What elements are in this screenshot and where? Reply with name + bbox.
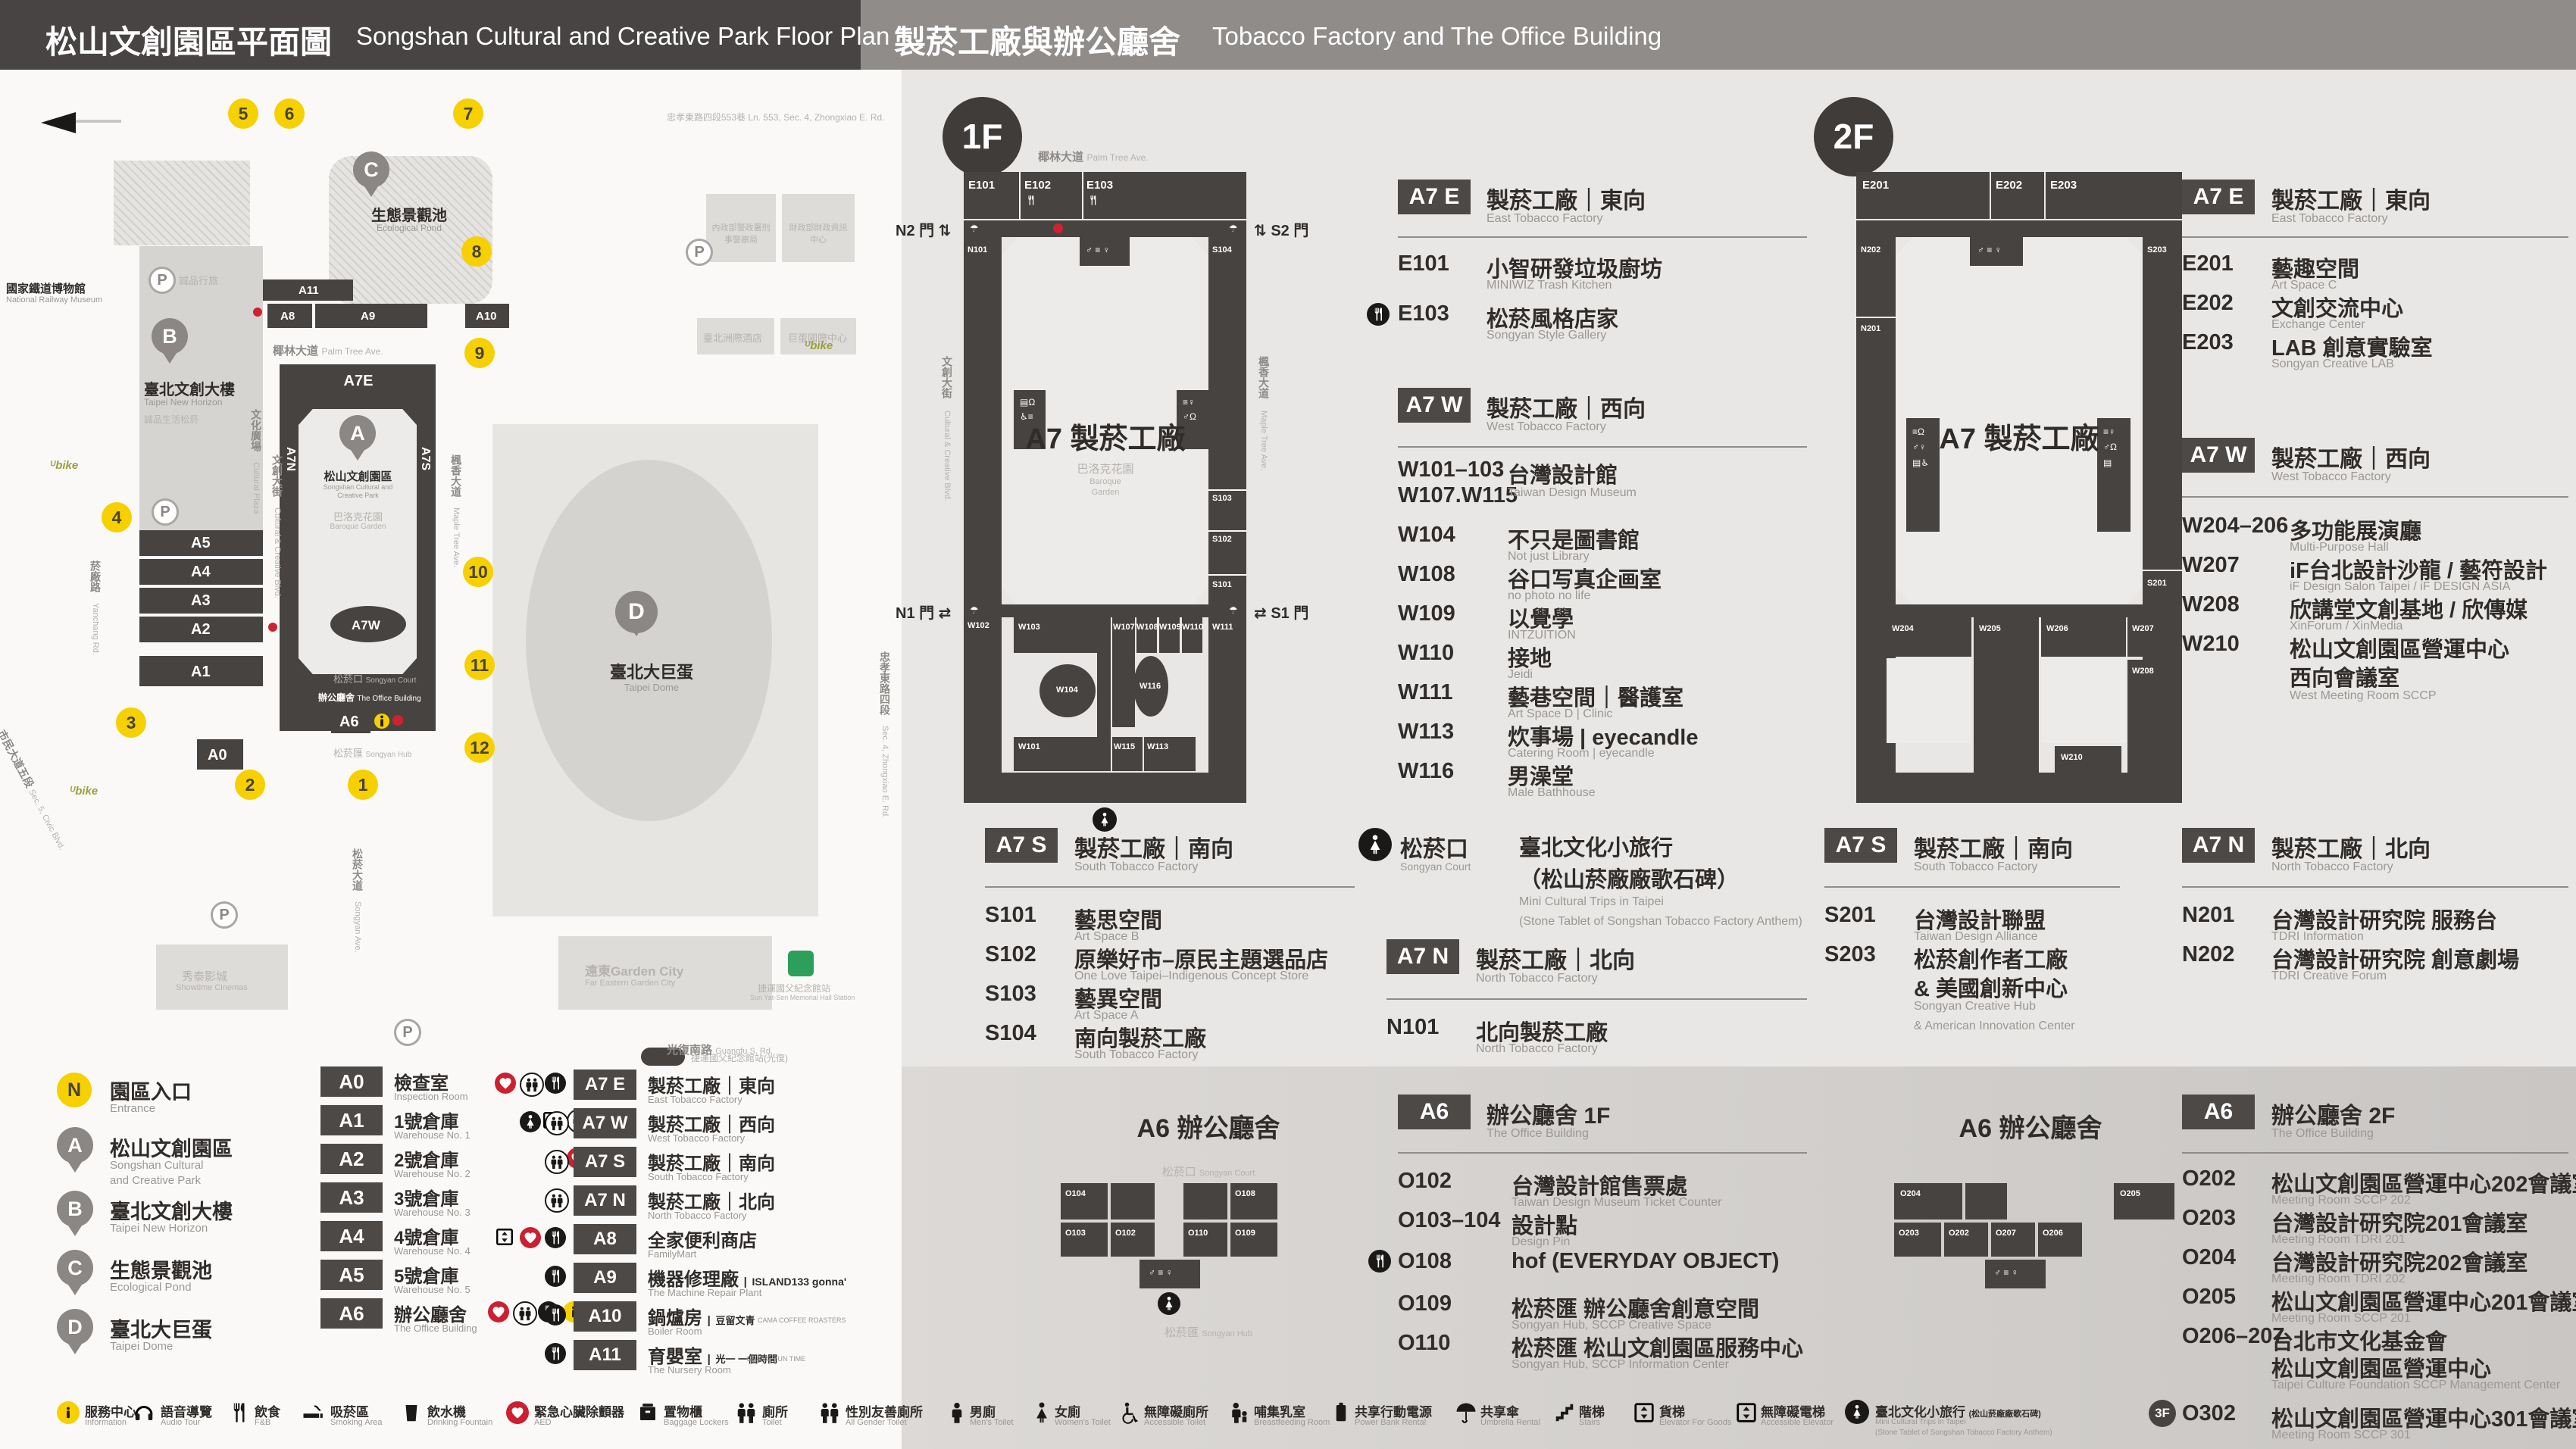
a6-2f-title: 辦公廳舍 2F bbox=[2271, 1097, 2395, 1130]
goods-elevator-strip-icon bbox=[1633, 1401, 1655, 1424]
floor-1f-badge: 1F bbox=[943, 97, 1022, 176]
f1-room-w113: W113 bbox=[1147, 742, 1168, 751]
a6-room-o108-label: O108 bbox=[1235, 1189, 1255, 1198]
taipei-dome-oval bbox=[526, 460, 772, 821]
mrt-logo-icon bbox=[788, 951, 814, 976]
row-en: TDRI Creative Forum bbox=[2271, 970, 2387, 983]
building-a9-label: A9 bbox=[361, 310, 375, 323]
legend-pin-b: B bbox=[57, 1191, 93, 1227]
strip-label-en: Power Bank Rental bbox=[1355, 1418, 1426, 1427]
f2-a7n-title: 製菸工廠｜北向 bbox=[2271, 830, 2431, 863]
f1-ediv3 bbox=[1208, 574, 1246, 576]
f2-a7e-title-en: East Tobacco Factory bbox=[2271, 212, 2388, 226]
row-en: Songyan Creative Hub bbox=[1914, 1000, 2036, 1013]
row-en: North Tobacco Factory bbox=[1476, 1042, 1598, 1056]
f2-w204-block bbox=[1887, 617, 1971, 657]
f1-room-e102: E102 bbox=[1024, 179, 1051, 192]
parking-icon-south2: P bbox=[394, 1019, 421, 1046]
trip-icon-a6-map bbox=[1158, 1292, 1180, 1315]
f1-a7e-rule bbox=[1398, 236, 1807, 238]
row-code: S203 bbox=[1824, 942, 1876, 967]
entrance-3: 3 bbox=[116, 707, 146, 738]
a7e-wing-label: A7E bbox=[336, 373, 381, 390]
f2-room-w207: W207 bbox=[2132, 624, 2154, 633]
trip-en1: Mini Cultural Trips in Taipei bbox=[1519, 895, 1664, 909]
legend-a2-badge: A2 bbox=[320, 1144, 383, 1174]
f2-center-label: A7 製菸工廠 bbox=[1902, 415, 2137, 457]
fnb-icon-o108 bbox=[1368, 1250, 1391, 1273]
row-en: Songyan Hub, SCCP Information Center bbox=[1512, 1358, 1729, 1372]
row-code: N201 bbox=[2182, 903, 2234, 928]
row-code: S201 bbox=[1824, 903, 1876, 928]
legend-pin-a: A bbox=[57, 1127, 93, 1163]
row-zh2: & 美國創新中心 bbox=[1914, 971, 2068, 1003]
baggage-lockers-icon bbox=[636, 1401, 659, 1424]
f1-room-n101: N101 bbox=[968, 245, 987, 255]
a6-1f-badge: A6 bbox=[1398, 1095, 1471, 1129]
legend-a5-en: Warehouse No. 5 bbox=[394, 1284, 470, 1295]
f1-room-w116: W116 bbox=[1140, 682, 1161, 691]
f1-a7s-title-en: South Tobacco Factory bbox=[1074, 860, 1198, 874]
youbike-icon-2: ᵁbike bbox=[70, 785, 98, 798]
f1-a7s-badge: A7 S bbox=[985, 828, 1058, 863]
strip-label-en: Baggage Lockers bbox=[664, 1418, 729, 1427]
legend-a7e-en: East Tobacco Factory bbox=[648, 1094, 742, 1105]
a6-room-o109-label: O109 bbox=[1235, 1229, 1255, 1238]
fnb-icon bbox=[227, 1401, 250, 1424]
legend-a11-badge: A11 bbox=[574, 1340, 636, 1370]
row-code: S102 bbox=[985, 942, 1036, 967]
building-a0-label: A0 bbox=[208, 747, 227, 764]
row-en: Male Bathhouse bbox=[1508, 786, 1596, 800]
row-zh: 松山文創園區營運中心 bbox=[2290, 632, 2509, 664]
f1-garden-en2: Garden bbox=[1008, 488, 1203, 497]
f1-center-label: A7 製菸工廠 bbox=[1008, 415, 1203, 457]
building-a5-label: A5 bbox=[191, 535, 211, 552]
legend-a7w-badge: A7 W bbox=[574, 1108, 636, 1138]
legend-a10-p2: CAMA COFFEE ROASTERS bbox=[758, 1316, 846, 1324]
trip-en2: (Stone Tablet of Songshan Tobacco Factor… bbox=[1519, 915, 1802, 929]
strip-label-en: Accessible Elevator bbox=[1761, 1418, 1834, 1427]
aed-icon-a7e bbox=[495, 1073, 516, 1094]
strip-label-en: Smoking Area bbox=[330, 1418, 382, 1427]
f1-room-w108: W108 bbox=[1136, 623, 1158, 632]
row-zh: 台灣設計館 bbox=[1508, 457, 1618, 489]
dome-label-zh: 臺北大巨蛋 bbox=[561, 659, 742, 683]
legend-a5-badge: A5 bbox=[320, 1260, 383, 1290]
railway-museum-label-zh: 國家鐵道博物館 bbox=[6, 280, 86, 296]
row-code: W204–206 bbox=[2182, 514, 2288, 539]
accessible-elevator-icon bbox=[1735, 1401, 1758, 1424]
fnb-icon-e103-row bbox=[1367, 303, 1390, 326]
f2-a7e-title: 製菸工廠｜東向 bbox=[2271, 182, 2431, 215]
a7n-wing-label: A7N bbox=[283, 447, 297, 500]
a6-1f-title: 辦公廳舍 1F bbox=[1487, 1097, 1610, 1130]
parking-icon-ne: P bbox=[686, 239, 713, 266]
right-title-zh: 製菸工廠與辦公廳舍 bbox=[894, 17, 1180, 63]
legend-d-zh: 臺北大巨蛋 bbox=[110, 1313, 212, 1343]
legend-a8-badge: A8 bbox=[574, 1224, 636, 1254]
row-en: Meeting Room SCCP 301 bbox=[2271, 1429, 2411, 1442]
fnb-icon-a11 bbox=[545, 1343, 566, 1364]
umbrella-rental-icon bbox=[1455, 1401, 1477, 1424]
building-a11-label: A11 bbox=[299, 284, 319, 297]
toilet-icon-a7s bbox=[545, 1150, 569, 1174]
entrance-8: 8 bbox=[461, 236, 492, 267]
f1-w107-block bbox=[1112, 617, 1135, 727]
f1-garden-zh: 巴洛克花園 bbox=[1008, 461, 1203, 476]
row-en: Songyan Style Gallery bbox=[1487, 329, 1606, 342]
row-code: N101 bbox=[1386, 1015, 1439, 1040]
strip-label-en: F&B bbox=[255, 1418, 270, 1427]
pin-a: A bbox=[339, 415, 376, 451]
row-code: W104 bbox=[1398, 523, 1455, 548]
trip-icon-a7w bbox=[520, 1111, 541, 1132]
floor-plan-poster: 松山文創園區平面圖 Songshan Cultural and Creative… bbox=[0, 0, 2576, 1449]
aed-icon-a8 bbox=[520, 1227, 541, 1248]
f2-room-e201: E201 bbox=[1862, 179, 1889, 192]
f2-a7n-rule bbox=[2182, 886, 2568, 888]
strip-label-en: Information bbox=[85, 1418, 127, 1427]
row-en: MINIWIZ Trash Kitchen bbox=[1487, 279, 1612, 292]
building-a8-label: A8 bbox=[280, 310, 295, 323]
f2-room-w204: W204 bbox=[1892, 624, 1914, 633]
f1-room-s102: S102 bbox=[1212, 535, 1232, 544]
cc-blvd-label: 文創大街 Cultural & Creative Blvd. bbox=[270, 454, 285, 598]
legend-a0-en: Inspection Room bbox=[394, 1091, 468, 1102]
a6-2f-title-en: The Office Building bbox=[2271, 1127, 2374, 1141]
a6-2f-rule bbox=[2182, 1152, 2568, 1154]
f2-room-n202: N202 bbox=[1861, 245, 1880, 255]
hotel-label: 臺北洲際酒店 bbox=[703, 330, 762, 345]
legend-entrance-en: Entrance bbox=[110, 1102, 155, 1115]
cc-blvd-1f: 文創大街 Cultural & Creative Blvd. bbox=[938, 356, 956, 501]
aed-dot-a8 bbox=[253, 308, 262, 317]
f2-w206-block bbox=[2041, 617, 2126, 657]
building-a2-label: A2 bbox=[191, 621, 211, 639]
goods-elevator-icon-a8 bbox=[495, 1227, 514, 1247]
legend-a-en2: and Creative Park bbox=[110, 1174, 201, 1187]
stairs-icon bbox=[1553, 1401, 1576, 1424]
f2-a7s-badge: A7 S bbox=[1824, 828, 1897, 863]
umbrella-icon-s2: ☂ bbox=[1229, 223, 1238, 233]
fnb-icon-e102 bbox=[1024, 194, 1036, 206]
row-code: W109 bbox=[1398, 601, 1455, 626]
row-code: O205 bbox=[2182, 1285, 2236, 1310]
row-code: O103–104 bbox=[1398, 1208, 1500, 1233]
pond-label-zh: 生態景觀池 bbox=[318, 203, 500, 225]
a6-room-o102 bbox=[1111, 1223, 1155, 1257]
a6-room-o205-label: O205 bbox=[2120, 1189, 2140, 1198]
f1-a7e-badge: A7 E bbox=[1398, 180, 1471, 214]
mini-cultural-trips-icon bbox=[1845, 1400, 1869, 1424]
pin-d: D bbox=[615, 591, 658, 633]
f1-a7e-title-en: East Tobacco Factory bbox=[1487, 212, 1603, 226]
f2-a7w-title: 製菸工廠｜西向 bbox=[2271, 440, 2431, 473]
fnb-icon-a7e bbox=[545, 1073, 566, 1094]
f2-a7s-rule bbox=[1824, 886, 2120, 888]
strip-label-en: Umbrella Rental bbox=[1480, 1418, 1540, 1427]
row-code: W210 bbox=[2182, 632, 2240, 657]
railway-museum-label-en: National Railway Museum bbox=[6, 295, 102, 304]
f2-north-corridor bbox=[1856, 220, 2182, 237]
trip-title-en: Songyan Court bbox=[1400, 860, 1471, 873]
f1-a7n-badge: A7 N bbox=[1386, 939, 1459, 974]
strip-label-en: Breastfeeding Room bbox=[1254, 1418, 1330, 1427]
a6-2f-block1 bbox=[1965, 1183, 2007, 1219]
row-code: W116 bbox=[1398, 759, 1454, 784]
legend-pin-c: C bbox=[57, 1250, 93, 1286]
row-code: S103 bbox=[985, 982, 1036, 1007]
f1-room-e103: E103 bbox=[1086, 179, 1113, 192]
row-code2: W107.W115 bbox=[1398, 483, 1518, 508]
row-code: E103 bbox=[1398, 301, 1449, 326]
toilet-icon-a7w bbox=[545, 1111, 569, 1135]
restroom-icons-a6: ♂ ≡ ♀ bbox=[1149, 1268, 1173, 1277]
f1-a7w-title-en: West Tobacco Factory bbox=[1487, 420, 1606, 434]
f1-gate-s2: ⇅ S2 門 bbox=[1254, 218, 1308, 240]
f2-room-n201: N201 bbox=[1861, 324, 1880, 333]
row-code: S101 bbox=[985, 903, 1036, 928]
f2-room-w210: W210 bbox=[2061, 753, 2083, 762]
legend-b-en: Taipei New Horizon bbox=[110, 1222, 208, 1235]
garden-city-label-en: Far Eastern Garden City bbox=[585, 979, 675, 988]
legend-a8-en: FamilyMart bbox=[648, 1248, 696, 1260]
plaza-hatch-area bbox=[114, 161, 250, 245]
f1-room-s104: S104 bbox=[1212, 245, 1232, 255]
f2-w204-room bbox=[1887, 658, 1971, 743]
row-code: O109 bbox=[1398, 1291, 1452, 1316]
legend-a4-en: Warehouse No. 4 bbox=[394, 1245, 470, 1257]
garden-city-label: 遠東Garden City bbox=[585, 960, 683, 979]
f1-room-w109: W109 bbox=[1159, 623, 1181, 632]
youbike-icon-1: ᵁbike bbox=[50, 459, 78, 472]
f1-west-wing bbox=[964, 237, 1002, 803]
dome-label-en: Taipei Dome bbox=[561, 682, 742, 693]
f1-a7w-rule bbox=[1398, 446, 1807, 448]
guangfu-rd-label: 光復南路 Guangfu S. Rd. bbox=[667, 1041, 773, 1057]
entrance-11: 11 bbox=[464, 650, 495, 680]
f2-a7n-badge: A7 N bbox=[2182, 828, 2255, 863]
a6-room-o102-label: O102 bbox=[1115, 1229, 1136, 1238]
f1-a7s-rule bbox=[985, 886, 1355, 888]
f1-room-s103: S103 bbox=[1212, 494, 1232, 503]
restroom-icons-a6-2f: ♂ ≡ ♀ bbox=[1994, 1268, 2018, 1277]
youbike-icon-3: ᵁbike bbox=[805, 339, 833, 352]
legend-a11-en: The Nursery Room bbox=[648, 1364, 731, 1376]
strip-label-en: Accessible Toilet bbox=[1144, 1418, 1205, 1427]
legend-a7s-badge: A7 S bbox=[574, 1147, 636, 1177]
f1-room-s101: S101 bbox=[1212, 580, 1232, 589]
legend-b-zh: 臺北文創大樓 bbox=[110, 1195, 233, 1225]
baroque-garden-en: Baroque Garden bbox=[303, 523, 413, 531]
songyan-hub-label: 松菸匯 Songyan Hub bbox=[333, 745, 411, 760]
civic-blvd-label: 市民大道五段 Sec. 5, Civic Blvd. bbox=[0, 727, 70, 852]
f2-a7e-badge: A7 E bbox=[2182, 180, 2255, 214]
trip-icon-f1-map bbox=[1093, 807, 1117, 832]
a6-1f-rule bbox=[1398, 1152, 1807, 1154]
f2-south-band bbox=[1856, 773, 2182, 803]
row-en: Taipei Culture Foundation SCCP Managemen… bbox=[2271, 1379, 2560, 1392]
entrance-4: 4 bbox=[102, 502, 132, 532]
row-en2: & American Innovation Center bbox=[1914, 1020, 2075, 1033]
row-en: Design Pin bbox=[1512, 1235, 1570, 1249]
legend-a7s-en: South Tobacco Factory bbox=[648, 1171, 749, 1182]
f2-ediv bbox=[2143, 570, 2182, 571]
f2-a7n-title-en: North Tobacco Factory bbox=[2271, 860, 2393, 874]
a6-room-o202-label: O202 bbox=[1949, 1229, 1969, 1238]
trip-line2: （松山菸廠廠歌石碑） bbox=[1519, 862, 1739, 894]
legend-a2-en: Warehouse No. 2 bbox=[394, 1168, 470, 1179]
row-zh: hof (EVERYDAY OBJECT) bbox=[1512, 1249, 1779, 1274]
building-a4-label: A4 bbox=[191, 564, 211, 581]
row-code: W108 bbox=[1398, 562, 1455, 587]
a6-room-o110-label: O110 bbox=[1188, 1229, 1208, 1238]
f2-south-corridor bbox=[1856, 604, 2182, 617]
a6-block-1 bbox=[1111, 1183, 1155, 1219]
strip-label-en: Elevator For Goods bbox=[1659, 1418, 1731, 1427]
entrance-7: 7 bbox=[453, 98, 483, 129]
a6-room-o203-label: O203 bbox=[1899, 1229, 1919, 1238]
sccp-label-zh: 松山文創園區 bbox=[303, 468, 413, 484]
row-en: Songyan Creative LAB bbox=[2271, 358, 2394, 371]
f1-south-band bbox=[964, 773, 1246, 803]
floor-2f-badge: 2F bbox=[1814, 97, 1893, 176]
a6-room-o203 bbox=[1894, 1223, 1941, 1257]
f1-room-w107: W107 bbox=[1113, 623, 1135, 632]
f1-garden-en1: Baroque bbox=[1008, 477, 1203, 486]
legend-a7n-badge: A7 N bbox=[574, 1185, 636, 1216]
f2-w207-block bbox=[2127, 617, 2182, 657]
parking-icon-south: P bbox=[211, 901, 238, 929]
legend-entrance-zh: 園區入口 bbox=[110, 1076, 192, 1105]
legend-a-en1: Songshan Cultural bbox=[110, 1159, 203, 1172]
f2-div1 bbox=[1990, 172, 1991, 219]
row-code: O102 bbox=[1398, 1169, 1452, 1194]
mrt-station-label-en: Sun Yat-Sen Memorial Hall Station bbox=[750, 994, 855, 1001]
strip-trip-en1: Mini Cultural Trips in Taipei bbox=[1875, 1418, 1965, 1426]
f1-div2 bbox=[1082, 172, 1083, 219]
zhongxiao-rd-label: 忠孝東路四段 Sec. 4, Zhongxiao E. Rd. bbox=[877, 651, 893, 818]
f2-a7s-title: 製菸工廠｜南向 bbox=[1914, 830, 2073, 863]
songyan-court-label: 松菸口 Songyan Court bbox=[333, 671, 416, 685]
aed-dot-a2 bbox=[268, 623, 277, 632]
legend-a3-badge: A3 bbox=[320, 1182, 383, 1213]
row-zh2: 西向會議室 bbox=[2290, 660, 2399, 692]
legend-a9-badge: A9 bbox=[574, 1263, 636, 1293]
aed-dot-a6 bbox=[392, 715, 403, 726]
drinking-fountain-icon bbox=[400, 1401, 423, 1424]
strip-label-en: Toilet bbox=[762, 1418, 782, 1427]
legend-c-zh: 生態景觀池 bbox=[110, 1254, 212, 1284]
row-code: O202 bbox=[2182, 1166, 2236, 1191]
f1-room-w103: W103 bbox=[1018, 623, 1040, 632]
f1-room-w110: W110 bbox=[1182, 623, 1203, 632]
a6-1f-hub-label: 松菸匯 Songyan Hub bbox=[1057, 1324, 1360, 1340]
pin-c: C bbox=[353, 151, 389, 188]
a6-1f-map-title: A6 辦公廳舍 bbox=[1057, 1107, 1360, 1145]
building-a1-label: A1 bbox=[191, 664, 211, 681]
legend-a3-en: Warehouse No. 3 bbox=[394, 1207, 470, 1218]
f1-east-wing bbox=[1208, 237, 1246, 803]
f2-room-s201: S201 bbox=[2147, 579, 2167, 588]
fnb-icon-a9 bbox=[545, 1266, 566, 1287]
a6-room-o206-label: O206 bbox=[2043, 1229, 2063, 1238]
floor-3f-mini-badge: 3F bbox=[2149, 1400, 2176, 1427]
new-horizon-label-en: Taipei New Horizon bbox=[144, 397, 222, 408]
eslite-hotel-label: 誠品行旅 bbox=[179, 273, 218, 287]
row-code: W111 bbox=[1398, 680, 1453, 705]
a6-room-o206 bbox=[2038, 1223, 2082, 1257]
entrance-12: 12 bbox=[464, 732, 495, 763]
umbrella-icon-n1: ☂ bbox=[970, 605, 979, 615]
breastfeeding-icon bbox=[1227, 1401, 1250, 1424]
row-code: S104 bbox=[985, 1021, 1036, 1046]
f2-a7s-title-en: South Tobacco Factory bbox=[1914, 860, 2037, 874]
legend-a7e-badge: A7 E bbox=[574, 1070, 636, 1100]
row-code: E201 bbox=[2182, 251, 2234, 276]
row-code: W113 bbox=[1398, 720, 1454, 745]
f1-room-w111: W111 bbox=[1212, 623, 1233, 632]
f1-room-w104: W104 bbox=[1056, 685, 1078, 695]
a6-room-o103-label: O103 bbox=[1065, 1229, 1086, 1238]
parking-icon-west: P bbox=[152, 498, 179, 526]
cultural-plaza-label: 文化廣場 Cultural Plaza bbox=[249, 409, 264, 514]
new-horizon-label-zh: 臺北文創大樓 bbox=[144, 377, 235, 399]
right-title-en: Tobacco Factory and The Office Building bbox=[1212, 22, 1662, 51]
row-code: W101–103 bbox=[1398, 457, 1504, 482]
entrance-9: 9 bbox=[464, 338, 495, 368]
f2-room-s203: S203 bbox=[2147, 245, 2167, 255]
a6-room-o104-label: O104 bbox=[1065, 1189, 1086, 1198]
a7s-wing-label: A7S bbox=[418, 447, 432, 500]
mens-toilet-icon bbox=[946, 1401, 968, 1424]
toilet-icon-a6 bbox=[513, 1301, 537, 1326]
strip-label-en: Women's Toilet bbox=[1055, 1418, 1111, 1427]
lane553-label: 忠孝東路四段553巷 Ln. 553, Sec. 4, Zhongxiao E.… bbox=[667, 111, 885, 123]
a6-room-o110 bbox=[1183, 1223, 1227, 1257]
toilet-icon-a7n bbox=[545, 1188, 569, 1213]
legend-a6-badge: A6 bbox=[320, 1298, 383, 1329]
f1-a7w-badge: A7 W bbox=[1398, 388, 1471, 423]
cid-bureau-label: 內政部警政署刑事警察局 bbox=[709, 221, 773, 245]
legend-a-zh: 松山文創園區 bbox=[110, 1132, 233, 1162]
songyan-ave-label: 松菸大道 Songyan Ave. bbox=[350, 848, 365, 953]
row-code: O206–207 bbox=[2182, 1324, 2284, 1349]
a6-block-2 bbox=[1183, 1183, 1227, 1219]
row-code: O110 bbox=[1398, 1331, 1450, 1356]
north-arrow-tail bbox=[76, 120, 121, 123]
f2-room-w208: W208 bbox=[2132, 667, 2154, 676]
row-code: N202 bbox=[2182, 942, 2234, 967]
f1-room-e101: E101 bbox=[968, 179, 995, 192]
fnb-icon-a10 bbox=[545, 1304, 566, 1326]
row-code: O203 bbox=[2182, 1206, 2236, 1231]
legend-a7w-en: West Tobacco Factory bbox=[648, 1132, 745, 1144]
restroom-icons-f1-north: ♂ ≡ ♀ bbox=[1086, 245, 1110, 255]
all-gender-toilet-icon bbox=[818, 1401, 841, 1424]
f1-gate-n2: N2 門 ⇅ bbox=[896, 218, 951, 240]
legend-a4-badge: A4 bbox=[320, 1221, 383, 1251]
a6-1f-court-label: 松菸口 Songyan Court bbox=[1057, 1163, 1360, 1179]
legend-a6-en: The Office Building bbox=[394, 1323, 477, 1334]
a6-room-o207 bbox=[1991, 1223, 2035, 1257]
f2-div2 bbox=[2044, 172, 2046, 219]
building-a10-label: A10 bbox=[476, 310, 497, 323]
mrt-station-label: 捷運國父紀念館站 bbox=[758, 982, 830, 995]
a6-room-o207-label: O207 bbox=[1996, 1229, 2016, 1238]
strip-trip-en2: (Stone Tablet of Songshan Tobacco Factor… bbox=[1875, 1429, 2052, 1437]
